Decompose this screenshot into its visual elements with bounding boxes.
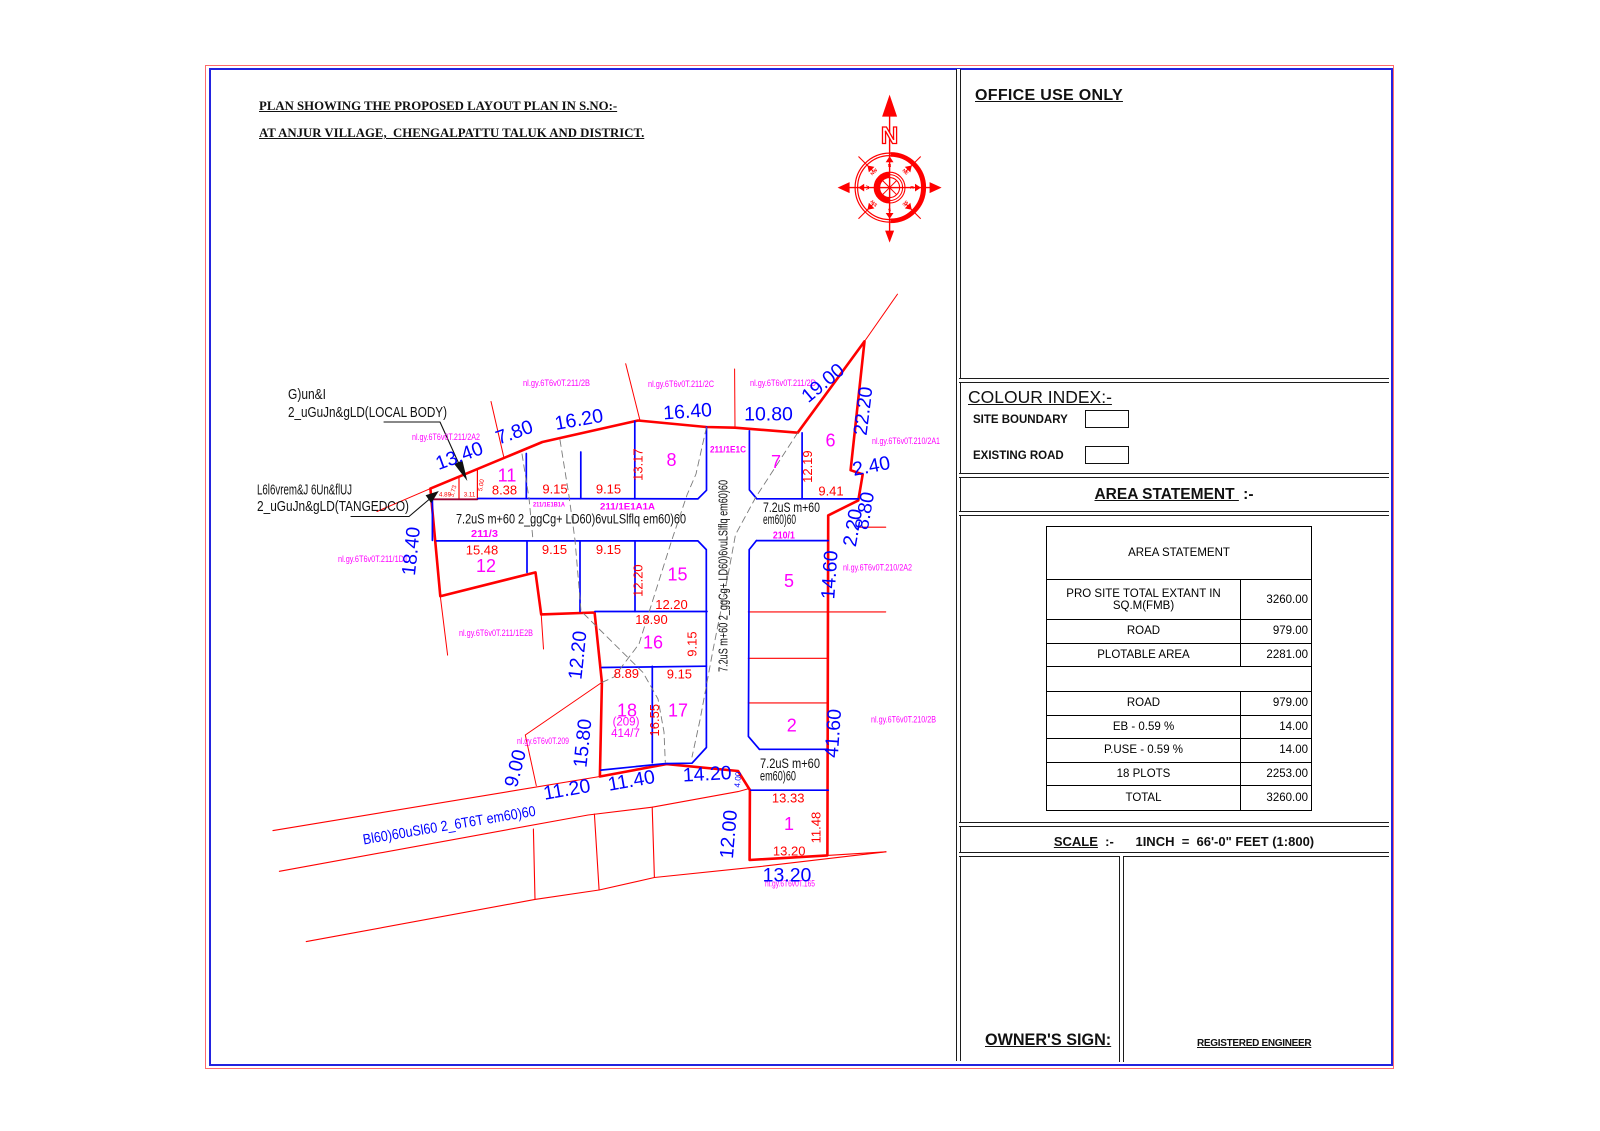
svg-text:211/1E1A1A: 211/1E1A1A [600, 502, 655, 513]
svg-text:nl.gy.6T6v0T.211/2C: nl.gy.6T6v0T.211/2C [648, 379, 714, 390]
svg-text:1: 1 [784, 814, 794, 834]
svg-text:211/3: 211/3 [471, 529, 499, 540]
svg-text:E: E [909, 186, 914, 189]
svg-text:7.80: 7.80 [493, 416, 536, 450]
svg-text:N: N [881, 123, 898, 150]
svg-text:14.60: 14.60 [817, 550, 842, 600]
svg-text:10.80: 10.80 [744, 403, 793, 425]
svg-text:9.00: 9.00 [500, 747, 531, 789]
svg-text:nl.gy.6T6v0T.209: nl.gy.6T6v0T.209 [517, 736, 569, 747]
svg-text:2_uGuJn&gLD(LOCAL BODY): 2_uGuJn&gLD(LOCAL BODY) [288, 405, 447, 421]
svg-text:15.80: 15.80 [570, 718, 597, 769]
svg-text:4.00: 4.00 [733, 771, 743, 788]
svg-text:2: 2 [787, 716, 797, 736]
svg-text:16.40: 16.40 [662, 399, 712, 424]
svg-text:11.20: 11.20 [542, 775, 593, 805]
svg-text:11.40: 11.40 [606, 766, 657, 796]
svg-text:nl.gy.6T6v0T.211/1D1: nl.gy.6T6v0T.211/1D1 [338, 554, 408, 565]
svg-text:5: 5 [784, 571, 794, 591]
svg-text:8.89: 8.89 [614, 666, 639, 681]
svg-text:W: W [865, 185, 870, 190]
svg-text:7.2uS m+60 2_ggCg+ LD60)6vu: 7.2uS m+60 2_ggCg+ LD60)6vuLSlflq em60)6… [456, 512, 686, 527]
svg-text:nl.gy.6T6v0T.210/2A1: nl.gy.6T6v0T.210/2A1 [872, 436, 940, 447]
svg-text:nl.gy.6T6v0T.211/1E2B: nl.gy.6T6v0T.211/1E2B [459, 628, 533, 639]
svg-text:13.33: 13.33 [772, 791, 805, 806]
svg-text:13.20: 13.20 [763, 864, 812, 886]
svg-text:19.00: 19.00 [797, 359, 849, 407]
svg-text:12.20: 12.20 [565, 630, 592, 681]
svg-text:8: 8 [666, 450, 676, 470]
svg-text:15: 15 [667, 565, 687, 585]
svg-text:16: 16 [643, 633, 663, 653]
svg-text:2.40: 2.40 [851, 452, 893, 481]
svg-text:9.15: 9.15 [542, 482, 567, 497]
svg-text:9.15: 9.15 [596, 542, 621, 557]
svg-text:211/1E1C: 211/1E1C [710, 445, 746, 456]
svg-text:41.60: 41.60 [821, 708, 846, 758]
svg-text:L6l6vrem&J 6Un&flUJ: L6l6vrem&J 6Un&flUJ [257, 483, 352, 499]
svg-text:9.15: 9.15 [685, 631, 700, 656]
svg-text:6: 6 [825, 431, 835, 451]
svg-text:18.90: 18.90 [635, 612, 668, 627]
svg-text:N: N [888, 163, 892, 168]
svg-text:17: 17 [668, 701, 688, 721]
svg-text:14.20: 14.20 [682, 762, 732, 787]
svg-text:15.48: 15.48 [466, 543, 499, 558]
svg-text:nl.gy.6T6v0T.210/2B: nl.gy.6T6v0T.210/2B [871, 715, 936, 726]
svg-text:9.15: 9.15 [596, 482, 621, 497]
svg-text:18.40: 18.40 [398, 526, 425, 577]
svg-text:12.00: 12.00 [716, 809, 742, 860]
svg-text:9.15: 9.15 [542, 542, 567, 557]
svg-text:12.19: 12.19 [800, 450, 815, 483]
svg-text:211/1E1B1A: 211/1E1B1A [533, 502, 565, 509]
svg-text:16.55: 16.55 [647, 704, 662, 737]
svg-text:nl.gy.6T6v0T.211/2B: nl.gy.6T6v0T.211/2B [523, 378, 590, 389]
svg-text:em60)60: em60)60 [760, 769, 796, 784]
svg-text:12.20: 12.20 [631, 564, 646, 597]
svg-text:9.41: 9.41 [818, 484, 843, 499]
svg-text:12.20: 12.20 [655, 597, 688, 612]
svg-text:11.48: 11.48 [809, 812, 824, 844]
svg-text:22.20: 22.20 [850, 385, 878, 436]
svg-text:G)un&I: G)un&I [288, 387, 326, 403]
svg-text:7: 7 [771, 452, 781, 472]
svg-text:5.00: 5.00 [477, 478, 486, 492]
svg-text:210/1: 210/1 [773, 531, 795, 542]
svg-text:7.2uS m+60 2_ggCg+ LD60)6vu: 7.2uS m+60 2_ggCg+ LD60)6vuLSlflq em60)6… [717, 480, 731, 672]
svg-text:3.73: 3.73 [449, 484, 459, 498]
svg-text:12: 12 [476, 556, 496, 576]
svg-text:13.17: 13.17 [631, 448, 646, 481]
svg-text:Bl60)60uSl60 2_6T6T em60)60: Bl60)60uSl60 2_6T6T em60)60 [362, 804, 537, 849]
svg-text:8.38: 8.38 [492, 483, 517, 498]
svg-text:S: S [888, 207, 891, 212]
svg-text:2.20: 2.20 [839, 507, 867, 548]
svg-text:3.11: 3.11 [464, 491, 476, 498]
svg-text:2_uGuJn&gLD(TANGEDCO): 2_uGuJn&gLD(TANGEDCO) [257, 499, 409, 515]
svg-text:(209): (209) [613, 717, 640, 729]
svg-text:9.15: 9.15 [667, 666, 692, 681]
svg-text:414/7: 414/7 [611, 728, 640, 740]
svg-text:13.20: 13.20 [773, 843, 806, 858]
svg-text:nl.gy.6T6v0T.210/2A2: nl.gy.6T6v0T.210/2A2 [843, 563, 912, 574]
svg-text:em60)60: em60)60 [763, 512, 796, 527]
